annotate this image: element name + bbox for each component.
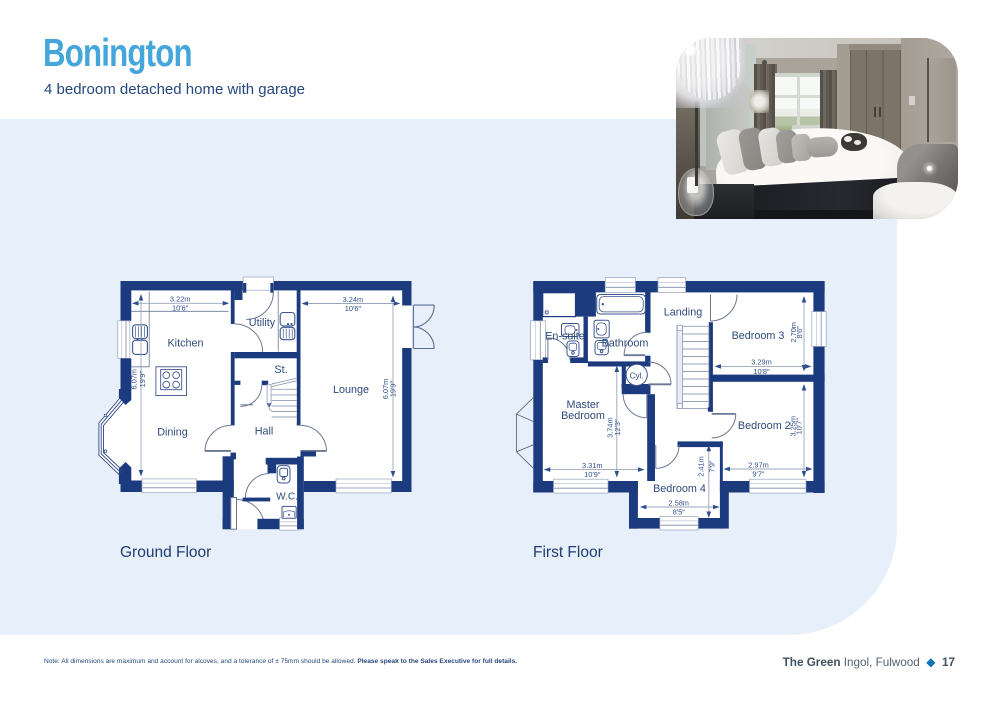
svg-text:Kitchen: Kitchen [167, 338, 203, 350]
svg-text:Dining: Dining [157, 426, 188, 438]
svg-text:2.58m: 2.58m [668, 498, 689, 507]
svg-text:Cyl.: Cyl. [630, 371, 644, 380]
svg-text:10′6″: 10′6″ [345, 304, 362, 313]
svg-text:Bathroom: Bathroom [602, 337, 649, 349]
svg-text:St.: St. [274, 364, 287, 376]
svg-text:Landing: Landing [664, 307, 702, 319]
svg-text:10′6″: 10′6″ [172, 304, 189, 313]
svg-text:3.22m: 3.22m [170, 295, 191, 304]
svg-text:8′6″: 8′6″ [795, 326, 804, 339]
svg-text:3.24m: 3.24m [343, 295, 364, 304]
svg-text:Bedroom 3: Bedroom 3 [732, 330, 785, 342]
svg-text:Master: Master [567, 399, 600, 411]
svg-text:2.97m: 2.97m [748, 460, 769, 469]
svg-text:En-suite: En-suite [545, 330, 585, 342]
svg-text:10′8″: 10′8″ [753, 367, 770, 376]
svg-text:9′7″: 9′7″ [752, 470, 765, 479]
svg-text:2.41m: 2.41m [696, 456, 705, 477]
svg-text:19′9″: 19′9″ [138, 371, 147, 388]
svg-text:Utility: Utility [249, 317, 276, 329]
svg-text:10′9″: 10′9″ [584, 470, 601, 479]
svg-text:W.C.: W.C. [276, 492, 298, 503]
svg-text:Lounge: Lounge [333, 384, 369, 396]
svg-text:12′3″: 12′3″ [613, 419, 622, 436]
svg-text:Bedroom: Bedroom [561, 410, 605, 422]
svg-text:3.31m: 3.31m [582, 461, 603, 470]
svg-text:Bedroom 4: Bedroom 4 [653, 483, 706, 495]
svg-text:19′9″: 19′9″ [389, 380, 398, 397]
svg-text:Bedroom 2: Bedroom 2 [738, 420, 791, 432]
svg-text:7′9″: 7′9″ [707, 460, 716, 473]
svg-text:10′7″: 10′7″ [795, 418, 804, 435]
svg-text:Hall: Hall [255, 425, 274, 437]
svg-text:3.29m: 3.29m [751, 358, 772, 367]
svg-text:8′5″: 8′5″ [673, 508, 686, 517]
